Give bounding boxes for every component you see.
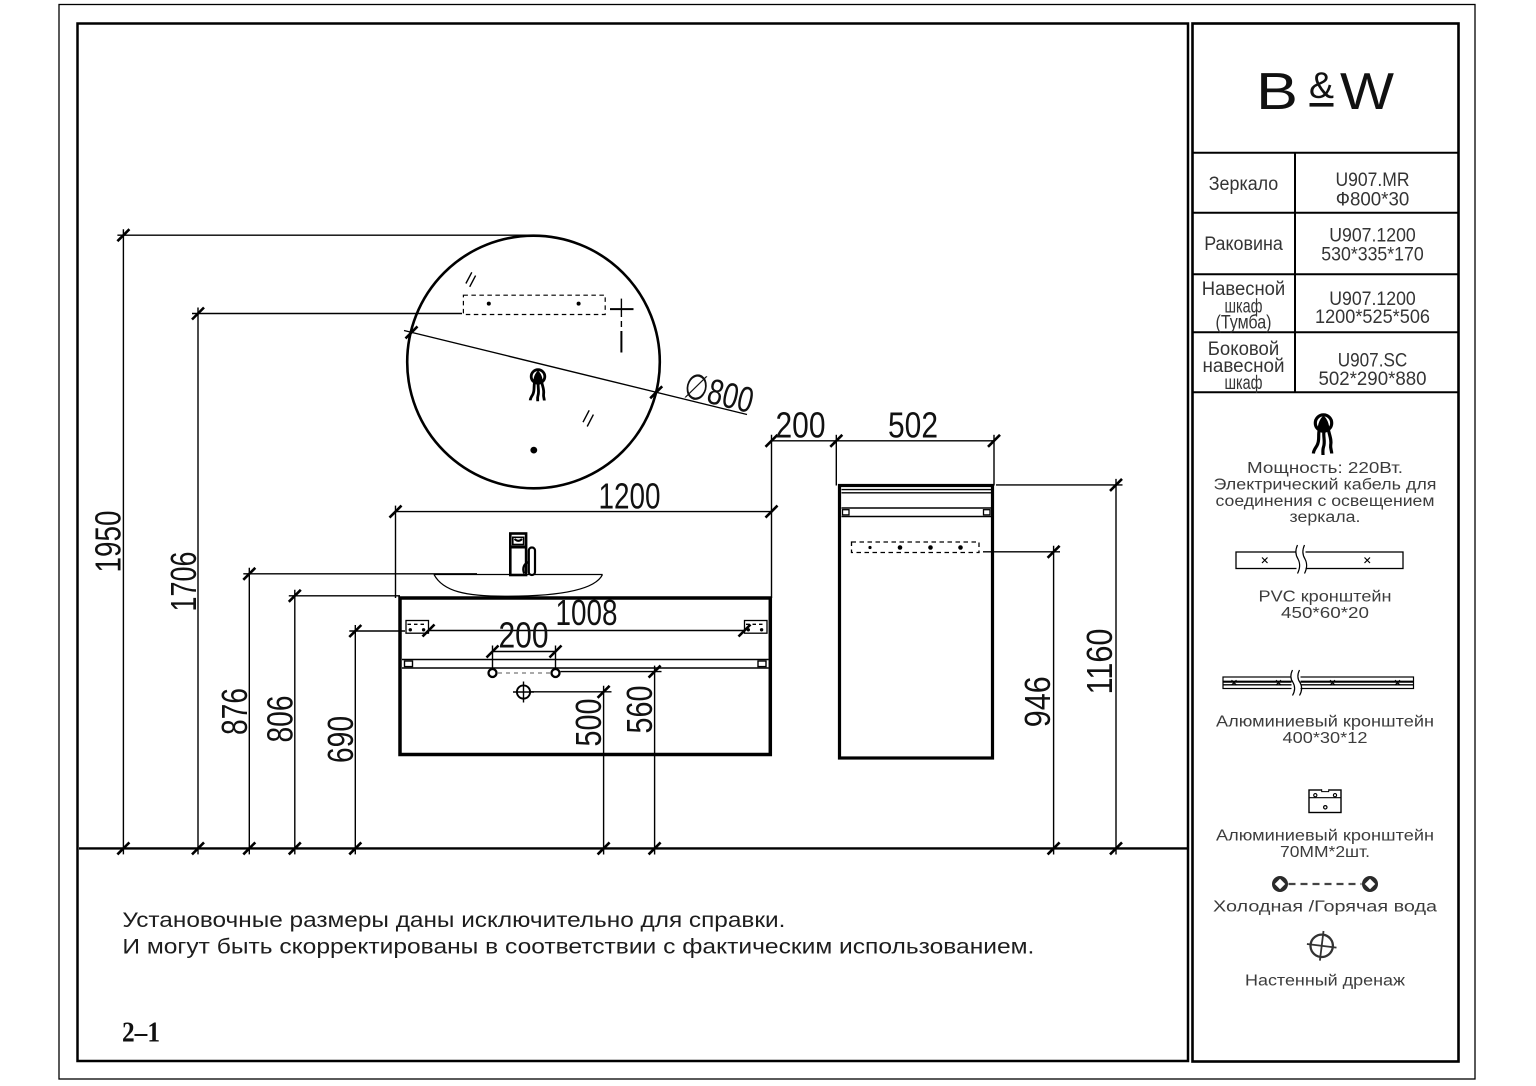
svg-text:200: 200 xyxy=(499,615,549,656)
svg-text:Настенный дренаж: Настенный дренаж xyxy=(1245,973,1406,990)
svg-text:зеркала.: зеркала. xyxy=(1290,509,1361,526)
svg-text:876: 876 xyxy=(214,688,255,735)
svg-text:1200: 1200 xyxy=(599,476,661,517)
svg-text:Установочные размеры даны искл: Установочные размеры даны исключительно … xyxy=(122,908,785,932)
svg-text:Зеркало: Зеркало xyxy=(1209,174,1279,195)
svg-text:2–1: 2–1 xyxy=(122,1017,160,1049)
svg-text:PVC кронштейн: PVC кронштейн xyxy=(1259,589,1392,606)
svg-text:530*335*170: 530*335*170 xyxy=(1321,245,1424,266)
svg-text:1200*525*506: 1200*525*506 xyxy=(1315,307,1430,328)
svg-text:Алюминиевый кронштейн: Алюминиевый кронштейн xyxy=(1216,828,1434,845)
svg-text:450*60*20: 450*60*20 xyxy=(1281,605,1369,622)
svg-text:U907.1200: U907.1200 xyxy=(1329,226,1416,247)
svg-text:Мощность: 220Вт.: Мощность: 220Вт. xyxy=(1247,460,1403,477)
svg-text:1950: 1950 xyxy=(88,511,129,573)
svg-text:Алюминиевый кронштейн: Алюминиевый кронштейн xyxy=(1216,714,1434,731)
svg-text:Ф800*30: Ф800*30 xyxy=(1336,190,1410,211)
svg-text:200: 200 xyxy=(776,404,826,445)
svg-text:Электрический кабель для: Электрический кабель для xyxy=(1214,477,1437,494)
svg-text:шкаф: шкаф xyxy=(1225,373,1263,394)
svg-text:1008: 1008 xyxy=(556,592,618,633)
svg-text:Раковина: Раковина xyxy=(1204,234,1283,255)
svg-text:И могут быть скорректированы в: И могут быть скорректированы в соответст… xyxy=(122,934,1034,958)
svg-text:B: B xyxy=(1256,63,1298,121)
svg-text:400*30*12: 400*30*12 xyxy=(1283,730,1368,747)
svg-text:806: 806 xyxy=(260,696,301,743)
svg-text:946: 946 xyxy=(1017,676,1058,727)
svg-text:Холодная /Горячая вода: Холодная /Горячая вода xyxy=(1213,899,1437,916)
svg-text:W: W xyxy=(1340,63,1394,121)
svg-text:500: 500 xyxy=(568,699,609,747)
svg-text:70ММ*2шт.: 70ММ*2шт. xyxy=(1280,844,1370,861)
svg-text:(Тумба): (Тумба) xyxy=(1216,313,1272,334)
svg-text:560: 560 xyxy=(619,686,660,734)
svg-text:502: 502 xyxy=(888,404,938,445)
svg-text:502*290*880: 502*290*880 xyxy=(1319,369,1427,390)
svg-text:U907.MR: U907.MR xyxy=(1336,170,1410,191)
svg-text:1706: 1706 xyxy=(163,552,204,612)
svg-text:соединения с освещением: соединения с освещением xyxy=(1216,493,1435,510)
svg-text:1160: 1160 xyxy=(1079,629,1120,695)
svg-text:690: 690 xyxy=(320,716,361,763)
svg-text:&: & xyxy=(1309,65,1334,106)
